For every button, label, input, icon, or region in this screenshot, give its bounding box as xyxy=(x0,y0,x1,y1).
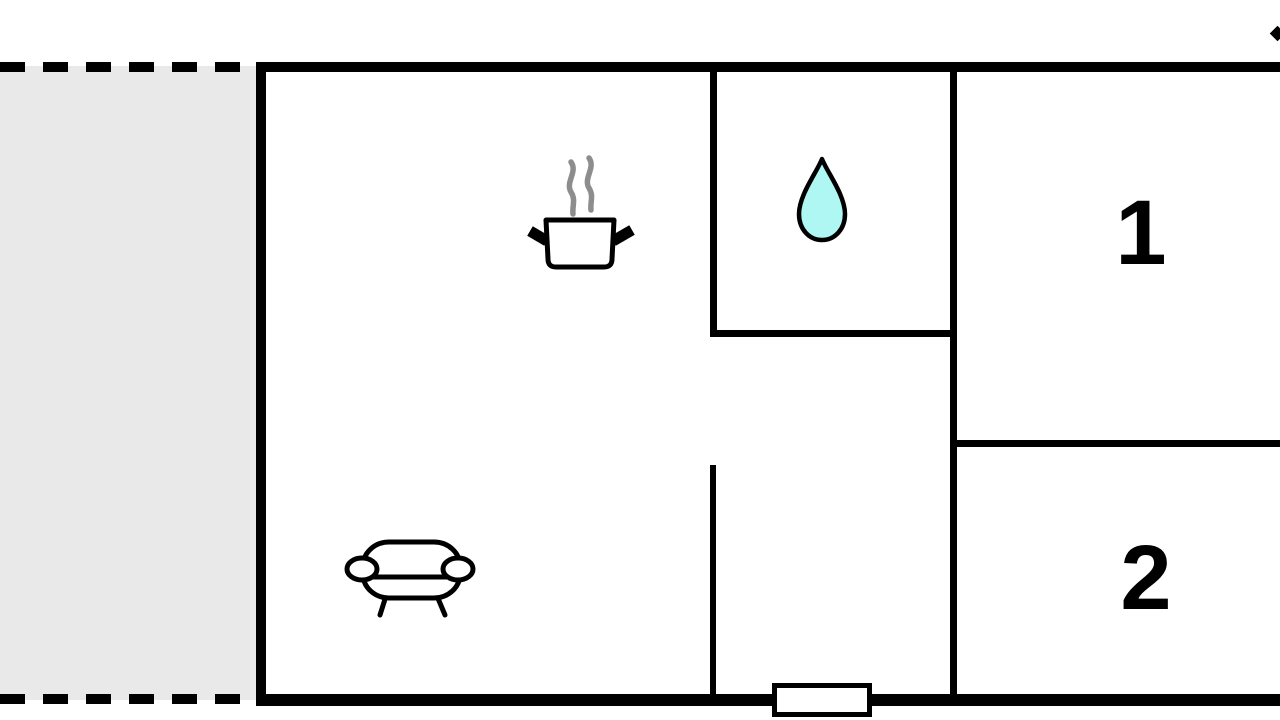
entrance-door xyxy=(772,683,872,717)
exterior-wall-bottom xyxy=(256,694,1280,706)
room-2-label: 2 xyxy=(1091,532,1201,624)
room-1-label: 1 xyxy=(1086,187,1196,279)
terrace-area xyxy=(0,66,258,700)
terrace-dashed-border-top xyxy=(0,62,256,72)
bathroom-wall-bottom xyxy=(710,330,957,337)
steam-pot-icon xyxy=(520,148,642,274)
bedrooms-wall-vertical xyxy=(950,72,957,694)
exterior-wall-top xyxy=(256,62,1280,72)
terrace-dashed-border-bottom xyxy=(0,694,256,704)
water-drop-icon xyxy=(792,152,854,246)
bedrooms-divider-wall xyxy=(950,440,1280,447)
bathroom-wall-left xyxy=(710,72,717,337)
sofa-icon xyxy=(340,534,480,620)
hallway-wall xyxy=(710,465,716,694)
edge-mark-icon xyxy=(1270,26,1280,42)
exterior-wall-left xyxy=(256,62,266,706)
floor-plan: 1 2 xyxy=(0,0,1280,720)
